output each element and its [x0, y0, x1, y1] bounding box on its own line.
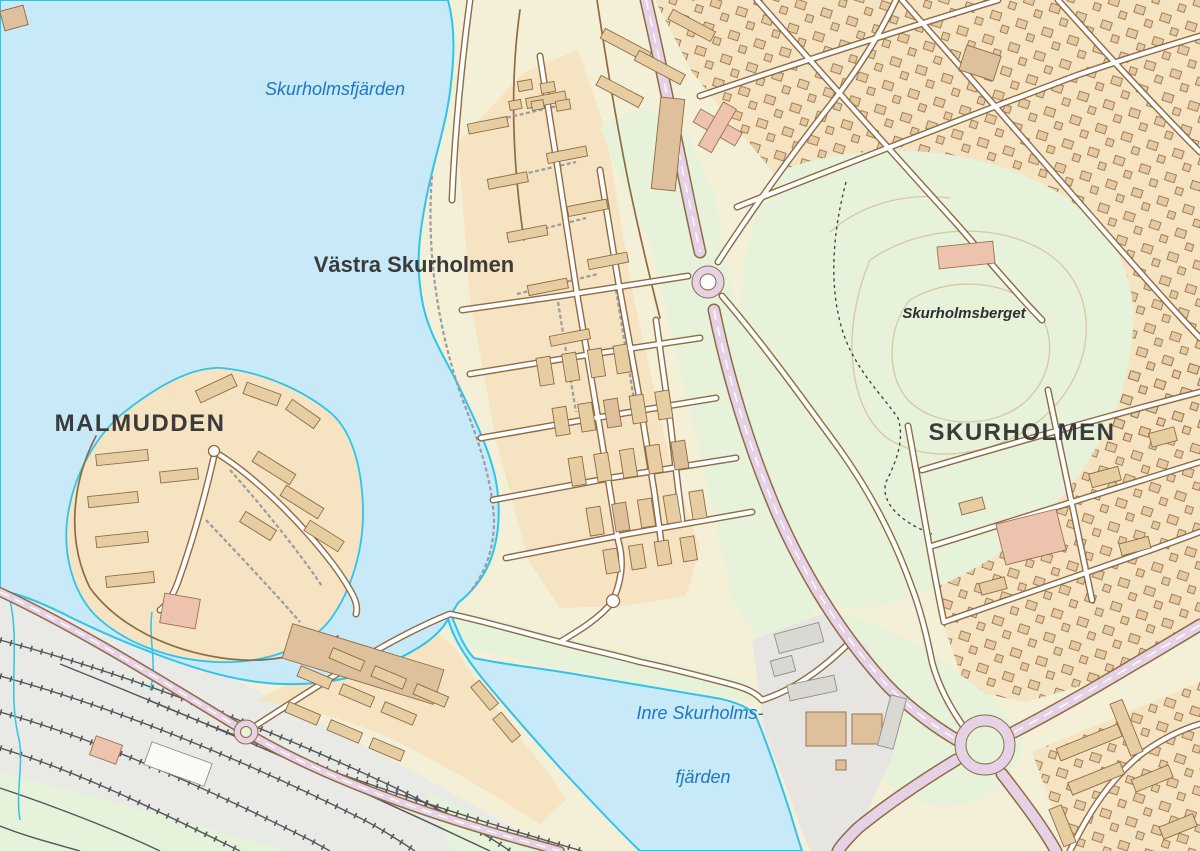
- cul-de-sac: [607, 595, 620, 608]
- label-inre-skurholms-line1: Inre Skurholms-: [636, 703, 763, 723]
- label-skurholmsberget: Skurholmsberget: [902, 305, 1026, 322]
- label-vastra-skurholmen: Västra Skurholmen: [314, 252, 515, 277]
- cul-de-sac: [209, 446, 220, 457]
- city-map-canvas[interactable]: Skurholmsfjärden Västra Skurholmen MALMU…: [0, 0, 1200, 851]
- map-viewport[interactable]: Skurholmsfjärden Västra Skurholmen MALMU…: [0, 0, 1200, 851]
- label-inre-skurholms-line2: fjärden: [675, 767, 730, 787]
- roundabout-southeast: [955, 715, 1015, 775]
- label-malmudden: MALMUDDEN: [55, 410, 226, 437]
- label-skurholmen: SKURHOLMEN: [929, 419, 1116, 446]
- roundabout-southwest: [234, 720, 258, 744]
- label-skurholmsfjarden: Skurholmsfjärden: [265, 79, 405, 99]
- roundabout-north: [692, 266, 724, 298]
